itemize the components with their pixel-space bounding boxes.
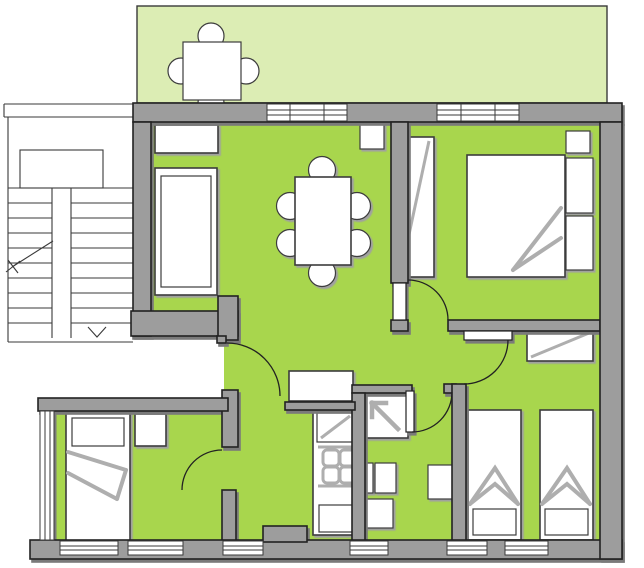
kitchen-lower-cabinet <box>319 505 353 532</box>
wall-bedroom3-north <box>38 398 228 411</box>
bathroom-door-leaf <box>406 391 414 432</box>
hall-sideboard <box>289 371 353 401</box>
bed-pillow <box>545 509 588 535</box>
wall-mid-horizontal <box>448 320 600 331</box>
wall-bathroom-east <box>452 384 466 543</box>
wall-pier <box>263 526 307 542</box>
top-wall-window-1 <box>267 104 347 121</box>
balcony-door-mat <box>360 123 384 149</box>
bed-pillow <box>72 418 124 446</box>
nightstand <box>135 414 166 446</box>
left-wall-window <box>40 411 54 540</box>
stair-down-arrow-icon <box>88 327 106 337</box>
wall-living-bedroom-divider <box>391 122 408 283</box>
bed-pillow <box>566 216 593 270</box>
bottom-window-5 <box>505 541 548 555</box>
stair-landing <box>20 150 103 188</box>
balcony-table <box>183 42 241 100</box>
living-shelf <box>155 125 218 153</box>
bottom-window-1a <box>60 541 118 555</box>
bedroom-top-right-door-leaf <box>393 283 406 320</box>
wall-bathroom-west <box>352 393 365 543</box>
bed-pillow <box>566 158 593 213</box>
wall-corridor-lower <box>222 490 236 543</box>
bottom-window-3 <box>350 541 388 555</box>
washbasin-right <box>428 465 455 499</box>
wall-bathroom-north <box>352 385 412 393</box>
wall-entry-doorstop <box>217 336 226 343</box>
bottom-window-1b <box>128 541 183 555</box>
top-wall-window-2 <box>437 104 519 121</box>
wall-west-living <box>133 122 151 336</box>
wall-top-exterior <box>133 103 622 122</box>
double-bed <box>467 155 565 277</box>
nightstand <box>566 131 590 153</box>
wall-entry-jamb <box>218 296 238 340</box>
bedroom-bottom-right-door-leaf <box>464 331 512 340</box>
wall-east-exterior <box>600 122 622 559</box>
wall-mid-stub <box>391 320 408 331</box>
floor-plan <box>0 0 644 568</box>
bottom-window-4 <box>447 541 487 555</box>
sofa <box>155 168 217 295</box>
wall-kitchen-niche <box>285 402 355 410</box>
wc <box>375 463 396 493</box>
washbasin-left <box>362 499 393 528</box>
floor-plan-drawing <box>0 0 644 568</box>
bed-pillow <box>473 509 516 535</box>
balcony <box>137 6 607 116</box>
bottom-window-2 <box>223 541 263 555</box>
stairwell <box>4 104 133 342</box>
dining-table <box>295 177 351 265</box>
